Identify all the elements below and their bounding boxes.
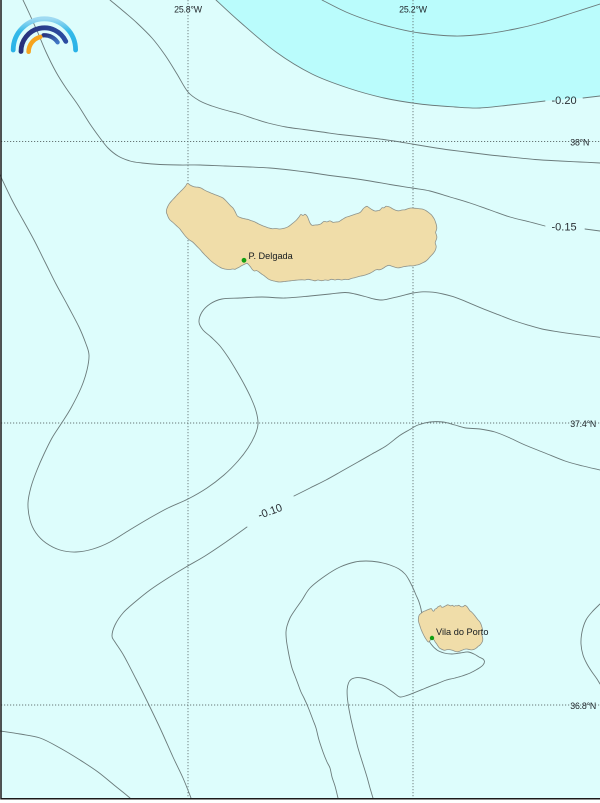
svg-text:Vila do Porto: Vila do Porto [436,627,488,637]
svg-text:-0.15: -0.15 [552,222,577,234]
svg-text:-0.20: -0.20 [552,95,577,107]
svg-text:25.2°W: 25.2°W [399,5,428,15]
svg-text:P. Delgada: P. Delgada [249,251,294,261]
svg-text:38°N: 38°N [570,137,589,147]
svg-text:36.8°N: 36.8°N [570,701,596,711]
svg-text:25.8°W: 25.8°W [174,5,203,15]
svg-text:37.4°N: 37.4°N [570,419,596,429]
